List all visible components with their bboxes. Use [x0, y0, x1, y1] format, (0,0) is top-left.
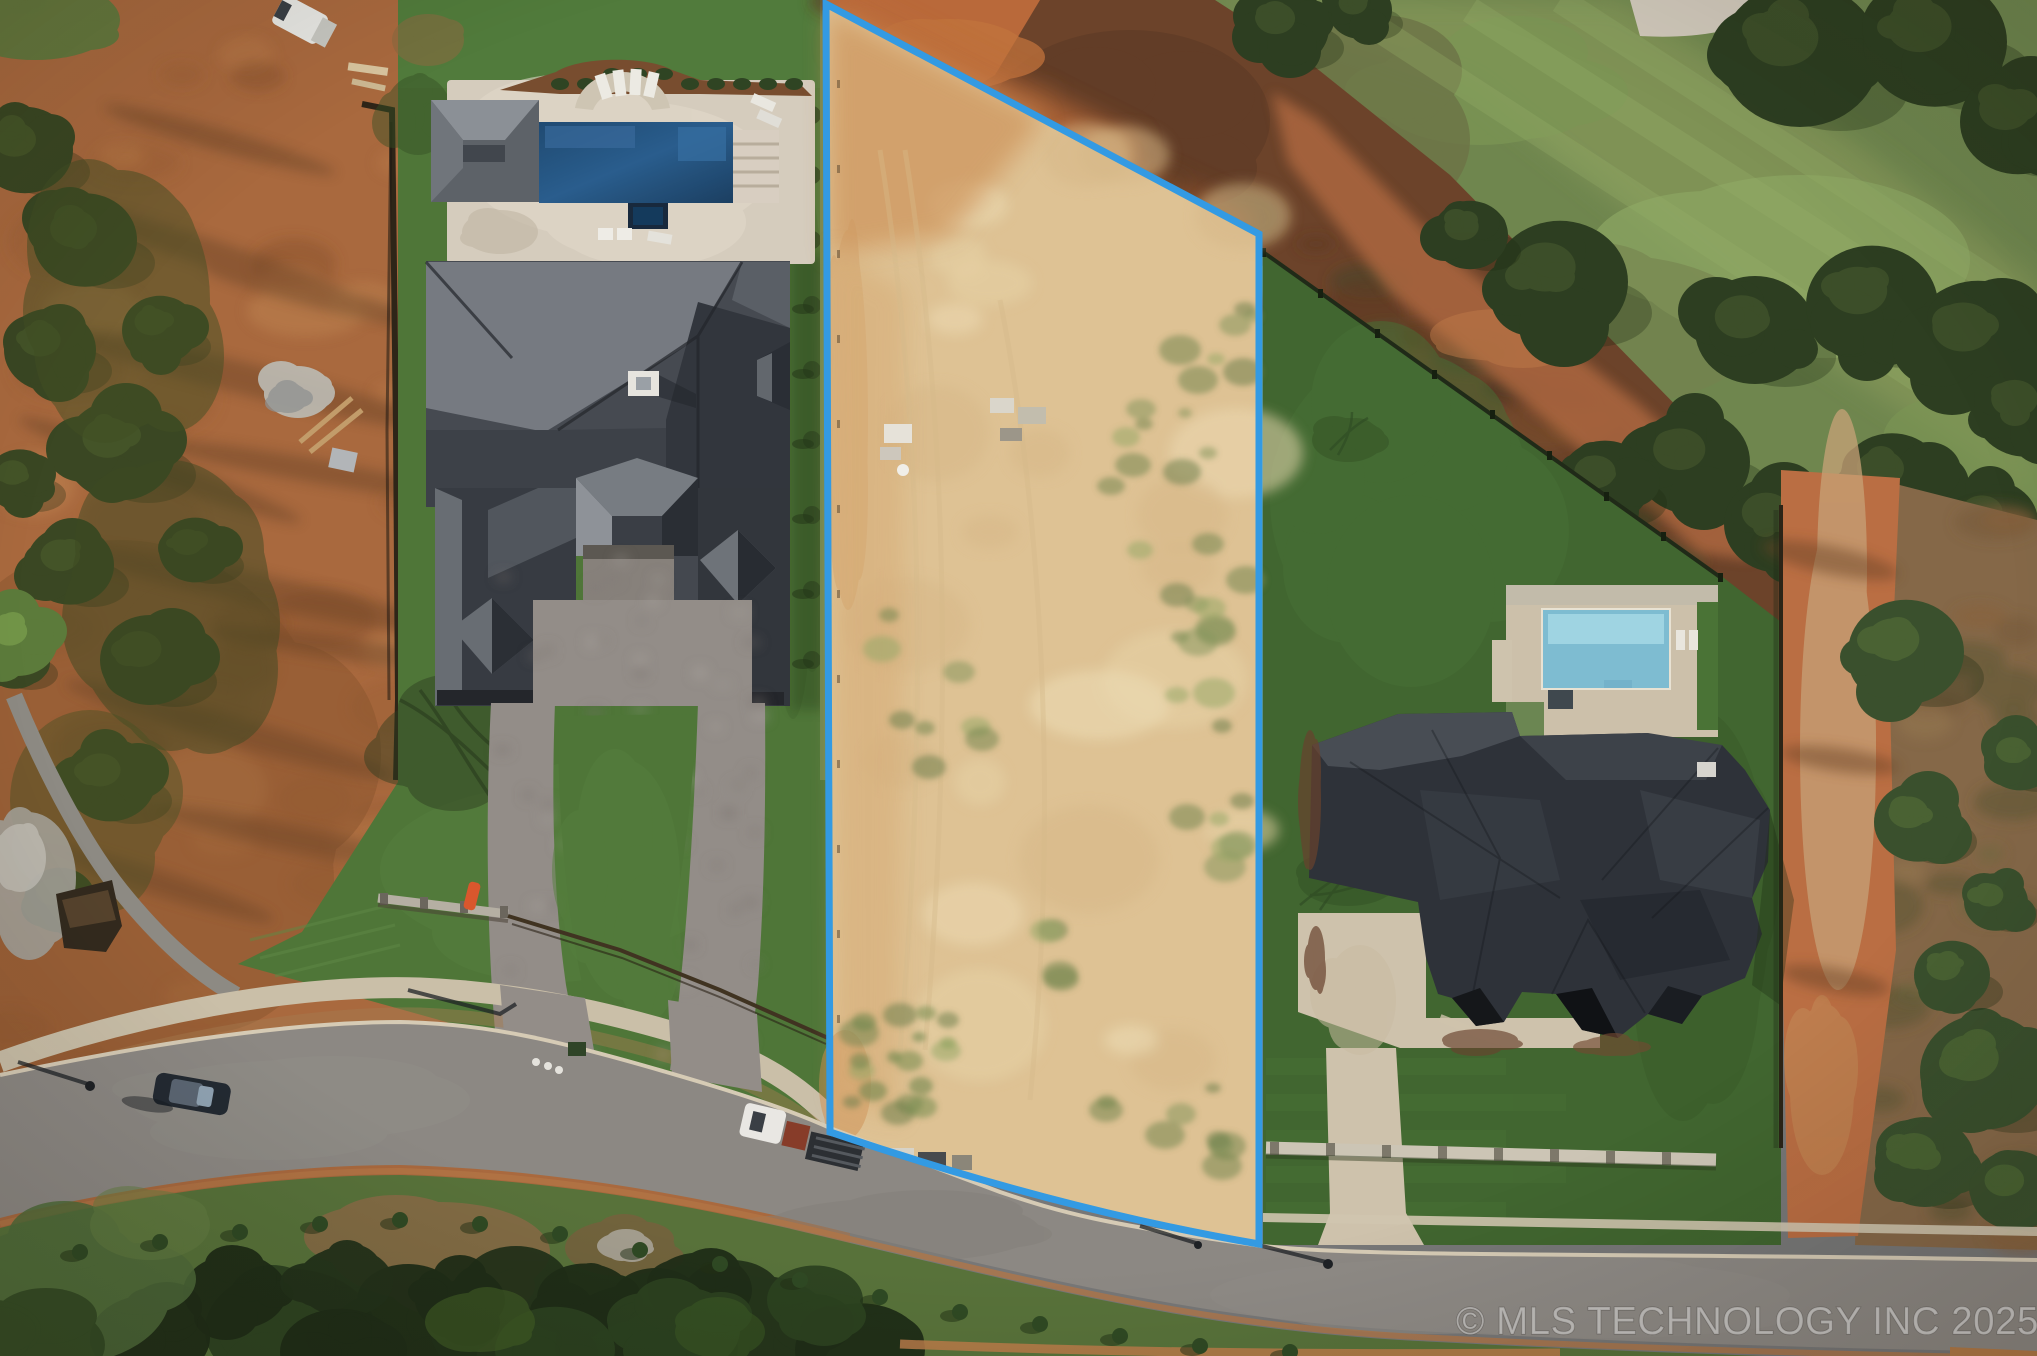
svg-text:© MLS TECHNOLOGY INC 2025: © MLS TECHNOLOGY INC 2025: [1456, 1300, 2037, 1343]
